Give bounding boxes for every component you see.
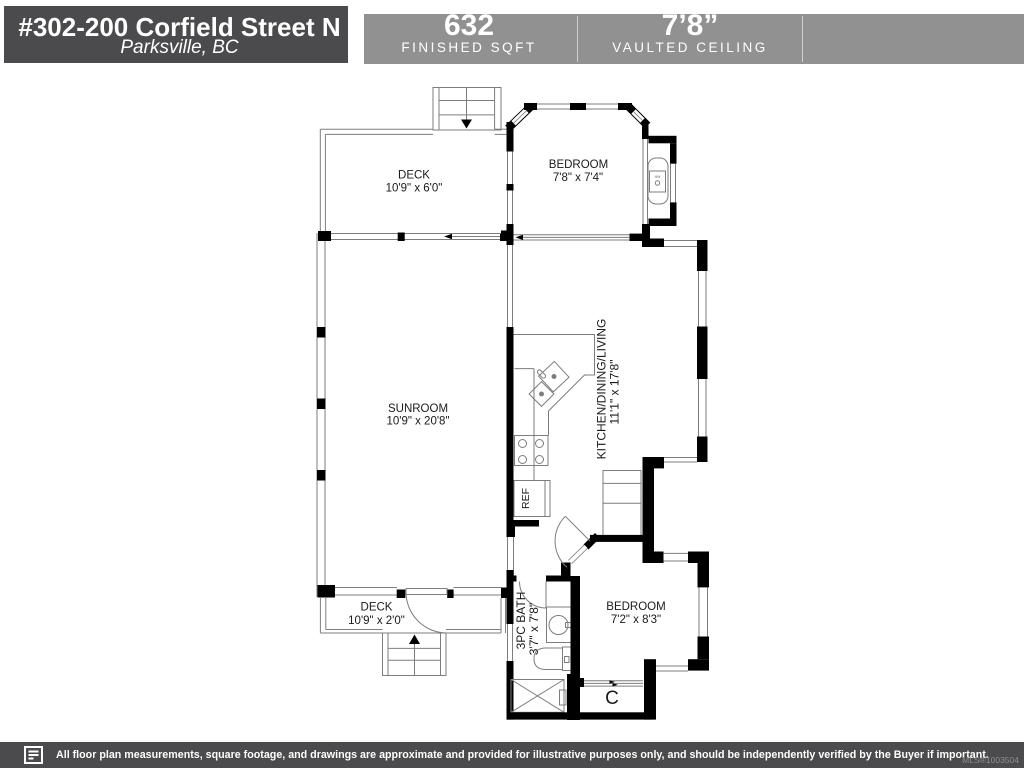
svg-text:HW: HW — [655, 175, 662, 179]
svg-text:BEDROOM: BEDROOM — [549, 159, 608, 171]
svg-text:3PC BATH: 3PC BATH — [514, 592, 528, 650]
svg-text:C: C — [605, 688, 619, 709]
svg-text:7'2" x 8'3": 7'2" x 8'3" — [611, 614, 661, 626]
svg-text:11'1" x 17'8": 11'1" x 17'8" — [608, 360, 622, 425]
svg-text:10'9" x 20'8": 10'9" x 20'8" — [386, 416, 449, 428]
svg-text:SUNROOM: SUNROOM — [388, 403, 448, 415]
svg-text:10'9" x 2'0": 10'9" x 2'0" — [348, 615, 405, 627]
svg-text:DECK: DECK — [398, 169, 430, 181]
svg-text:7'8" x 7'4": 7'8" x 7'4" — [553, 172, 603, 184]
svg-text:10'9" x 6'0": 10'9" x 6'0" — [386, 183, 443, 195]
svg-text:3'7" x 7'8": 3'7" x 7'8" — [527, 603, 541, 655]
svg-text:BEDROOM: BEDROOM — [606, 601, 665, 613]
svg-text:KITCHEN/DINING/LIVING: KITCHEN/DINING/LIVING — [595, 319, 609, 460]
svg-text:REF: REF — [520, 488, 532, 509]
svg-text:DECK: DECK — [361, 602, 393, 614]
